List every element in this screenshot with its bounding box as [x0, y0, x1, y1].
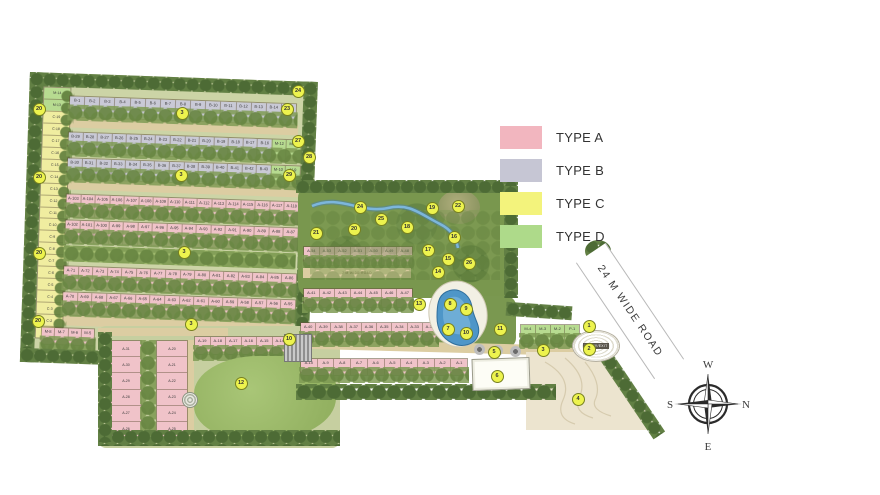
- plot-cell: A-105: [94, 195, 109, 217]
- plot-cell: B-12: [235, 102, 251, 123]
- plot-cell: A-82: [223, 272, 238, 294]
- plot-cell: A-115: [240, 200, 255, 222]
- map-marker-5: 5: [488, 346, 501, 359]
- tree-column: [140, 340, 156, 436]
- map-marker-17: 17: [422, 244, 435, 257]
- plot-cell: A-69: [76, 293, 91, 315]
- plot-cell: A-2: [434, 359, 451, 375]
- plot-cell: A-66: [120, 294, 135, 316]
- plot-cell: A-25: [157, 421, 187, 437]
- plot-cell: A-9: [317, 359, 334, 375]
- plot-cell: A-33: [407, 323, 422, 341]
- plot-cell: C-18: [43, 122, 69, 135]
- plot-cell: B-30: [67, 158, 81, 178]
- plot-cell: A-112: [196, 199, 211, 221]
- plot-cell: A-83: [237, 272, 252, 294]
- plot-cell: M-6: [67, 328, 81, 344]
- plot-column-a31-26: A-31A-30A-29A-28A-27A-26: [110, 340, 142, 438]
- map-marker-9: 9: [460, 303, 473, 316]
- compass-letter-right: N: [742, 399, 750, 411]
- plot-cell: A-79: [179, 270, 194, 292]
- plot-cell: A-88: [268, 227, 283, 249]
- plot-cell: A-116: [254, 201, 269, 223]
- plot-cell: A-22: [157, 372, 187, 388]
- plot-cell: A-41: [304, 289, 319, 307]
- type-c-label: TYPE C: [556, 196, 605, 211]
- plot-cell: A-8: [333, 359, 350, 375]
- plot-cell: M-14: [44, 88, 70, 100]
- plot-cell: C-10: [39, 218, 65, 231]
- map-marker-29: 29: [283, 169, 296, 182]
- plot-cell: B-4: [114, 98, 130, 119]
- type-b-swatch: [500, 159, 542, 182]
- compass-letter-left: S: [667, 399, 673, 411]
- plot-cell: B-13: [250, 103, 266, 124]
- plot-cell: B-16: [256, 139, 271, 159]
- plot-cell: A-110: [167, 198, 182, 220]
- plot-cell: A-117: [269, 201, 284, 223]
- plot-cell: B-3: [99, 97, 115, 118]
- plot-cell: A-94: [181, 224, 196, 246]
- plot-cell: B-5: [129, 98, 145, 119]
- map-marker-14: 14: [432, 266, 445, 279]
- plot-cell: B-34: [125, 160, 140, 180]
- entry-gate: ENTRY/EXIT: [572, 330, 620, 362]
- plot-cell: B-2: [84, 97, 100, 118]
- map-marker-24: 24: [292, 85, 305, 98]
- plot-cell: M-4: [521, 325, 535, 343]
- plot-cell: A-27: [111, 405, 141, 421]
- plot-cell: B-11: [220, 102, 236, 123]
- plot-cell: A-16: [241, 337, 257, 354]
- road-planter: [474, 344, 485, 355]
- internal-road: [98, 328, 228, 336]
- plot-cell: A-109: [152, 197, 167, 219]
- map-marker-1: 1: [583, 320, 596, 333]
- central-park: [298, 184, 514, 298]
- plot-cell: A-87: [282, 228, 297, 250]
- plot-cell: A-26: [111, 421, 141, 437]
- plot-cell: B-36: [154, 161, 169, 181]
- map-marker-24: 24: [354, 201, 367, 214]
- plot-cell: A-97: [137, 223, 152, 245]
- plot-cell: C-15: [42, 158, 68, 171]
- map-marker-18: 18: [401, 221, 414, 234]
- plot-cell: A-59: [222, 298, 237, 320]
- plot-cell: A-19: [195, 337, 210, 354]
- legend: TYPE A TYPE B TYPE C TYPE D: [500, 126, 605, 258]
- plot-cell: A-54: [304, 247, 319, 265]
- plot-cell: A-96: [151, 223, 166, 245]
- plot-row-m8-5: M-8M-7M-6M-5: [40, 327, 95, 347]
- fountain: [182, 392, 198, 408]
- map-marker-8: 8: [444, 298, 457, 311]
- plot-cell: B-29: [68, 132, 82, 152]
- plot-cell: A-77: [150, 269, 165, 291]
- map-marker-22: 22: [452, 200, 465, 213]
- compass-letter-top: W: [703, 359, 714, 371]
- plot-cell: A-103: [66, 194, 80, 216]
- map-marker-3: 3: [175, 169, 188, 182]
- map-marker-20: 20: [32, 315, 45, 328]
- plot-cell: B-20: [198, 137, 213, 157]
- map-marker-27: 27: [292, 135, 305, 148]
- plot-cell: B-43: [256, 165, 271, 185]
- plot-cell: A-44: [350, 289, 366, 307]
- legend-item-type-d: TYPE D: [500, 225, 605, 248]
- plot-cell: A-80: [193, 271, 208, 293]
- plot-cell: B-7: [159, 100, 175, 121]
- plot-cell: B-41: [226, 164, 241, 184]
- plot-cell: B-18: [227, 138, 242, 158]
- plot-cell: A-71: [63, 266, 77, 288]
- plot-cell: A-36: [361, 323, 376, 341]
- plot-cell: A-56: [265, 299, 280, 321]
- plot-row-b2: B-29B-28B-27B-26B-25B-24B-23B-22B-21B-20…: [67, 131, 302, 161]
- plot-row-a10-1: A-10A-9A-8A-7A-6A-5A-4A-3A-2A-1: [300, 358, 468, 376]
- map-marker-19: 19: [426, 202, 439, 215]
- plot-cell: A-81: [208, 271, 223, 293]
- plot-cell: A-31: [111, 341, 141, 356]
- plot-cell: A-62: [178, 296, 193, 318]
- plot-cell: A-42: [319, 289, 335, 307]
- plot-cell: A-29: [111, 372, 141, 388]
- map-marker-7: 7: [442, 323, 455, 336]
- plot-cell: C-16: [42, 146, 68, 159]
- plot-row-m4-p1: M-4M-3M-2P-1: [520, 324, 580, 344]
- plot-cell: A-30: [111, 356, 141, 372]
- plot-cell: A-76: [135, 269, 150, 291]
- plot-cell: M-3: [535, 325, 550, 343]
- plot-cell: A-95: [166, 224, 181, 246]
- plot-cell: A-107: [123, 196, 138, 218]
- plot-cell: B-27: [96, 133, 111, 153]
- plot-cell: A-28: [111, 389, 141, 405]
- map-marker-20: 20: [348, 223, 361, 236]
- plot-cell: C-11: [40, 206, 66, 219]
- plot-cell: A-111: [181, 198, 196, 220]
- map-marker-13: 13: [413, 298, 426, 311]
- plot-cell: A-38: [330, 323, 345, 341]
- plot-cell: A-101: [79, 221, 94, 243]
- plot-row-a40-32: A-40A-39A-38A-37A-36A-35A-34A-33A-32: [300, 322, 438, 342]
- plot-cell: A-64: [149, 295, 164, 317]
- plot-cell: M-5: [80, 329, 94, 345]
- plot-cell: A-85: [266, 273, 281, 295]
- map-marker-11: 11: [494, 323, 507, 336]
- plot-cell: B-35: [139, 161, 154, 181]
- map-marker-4: 4: [572, 393, 585, 406]
- plot-cell: A-65: [134, 295, 149, 317]
- plot-cell: A-118: [283, 202, 298, 224]
- map-marker-3: 3: [537, 344, 550, 357]
- map-marker-20: 20: [33, 247, 46, 260]
- plot-row-a19-14: A-19A-18A-17A-16A-15A-14: [194, 336, 288, 355]
- plot-cell: M-2: [550, 325, 565, 343]
- map-marker-15: 15: [442, 253, 455, 266]
- plot-cell: A-72: [77, 267, 92, 289]
- plot-cell: B-14: [265, 103, 281, 124]
- plot-cell: A-99: [108, 222, 123, 244]
- map-marker-28: 28: [303, 151, 316, 164]
- map-marker-10: 10: [460, 327, 473, 340]
- plot-cell: A-102: [65, 220, 79, 242]
- plot-cell: A-93: [195, 225, 210, 247]
- plot-cell: C-4: [37, 290, 63, 303]
- plot-cell: A-7: [350, 359, 367, 375]
- type-a-label: TYPE A: [556, 130, 603, 145]
- plot-cell: B-1: [69, 96, 84, 116]
- type-c-swatch: [500, 192, 542, 215]
- plot-cell: A-48: [396, 247, 412, 265]
- map-marker-3: 3: [176, 107, 189, 120]
- plot-cell: A-73: [92, 267, 107, 289]
- plot-cell: C-13: [41, 182, 67, 195]
- map-marker-2: 2: [583, 343, 596, 356]
- plot-cell: A-21: [157, 356, 187, 372]
- map-marker-25: 25: [375, 213, 388, 226]
- plot-cell: A-61: [193, 297, 208, 319]
- compass-letter-bottom: E: [705, 441, 712, 453]
- type-d-label: TYPE D: [556, 229, 605, 244]
- plot-cell: A-24: [157, 405, 187, 421]
- plot-cell: B-42: [241, 164, 256, 184]
- plot-cell: C-5: [37, 278, 63, 291]
- plot-cell: A-78: [164, 270, 179, 292]
- plot-cell: B-33: [110, 160, 125, 180]
- map-marker-21: 21: [310, 227, 323, 240]
- plot-cell: A-3: [417, 359, 434, 375]
- plot-cell: A-90: [239, 226, 254, 248]
- map-marker-20: 20: [33, 171, 46, 184]
- plot-cell: B-31: [81, 159, 96, 179]
- plot-cell: A-68: [91, 293, 106, 315]
- plot-cell: B-10: [205, 101, 221, 122]
- legend-item-type-c: TYPE C: [500, 192, 605, 215]
- plot-cell: A-104: [80, 195, 95, 217]
- southwest-plot-block: A-31A-30A-29A-28A-27A-26 A-20A-21A-22A-2…: [98, 326, 340, 448]
- plot-cell: A-74: [106, 268, 121, 290]
- plot-cell: C-6: [38, 266, 64, 279]
- plot-cell: B-28: [82, 133, 97, 153]
- type-d-swatch: [500, 225, 542, 248]
- plot-cell: A-52: [334, 247, 350, 265]
- plot-cell: A-55: [280, 300, 295, 322]
- legend-item-type-a: TYPE A: [500, 126, 605, 149]
- plot-cell: A-51: [350, 247, 366, 265]
- plot-cell: A-46: [381, 289, 397, 307]
- plot-cell: A-47: [396, 289, 412, 307]
- plot-cell: A-17: [225, 337, 241, 354]
- map-marker-20: 20: [33, 103, 46, 116]
- plot-cell: A-43: [334, 289, 350, 307]
- plot-cell: B-19: [213, 137, 228, 157]
- plot-cell: B-22: [169, 136, 184, 156]
- map-marker-3: 3: [185, 318, 198, 331]
- plot-cell: A-18: [210, 337, 226, 354]
- compass-rose: W N E S: [658, 352, 758, 456]
- plot-cell: M-7: [54, 328, 68, 344]
- type-a-swatch: [500, 126, 542, 149]
- plot-cell: A-100: [93, 221, 108, 243]
- compass-main-points: [678, 374, 738, 434]
- plot-cell: A-15: [256, 337, 272, 354]
- plot-cell: A-70: [63, 292, 77, 314]
- plot-column-a20-25: A-20A-21A-22A-23A-24A-25: [156, 340, 188, 438]
- plot-cell: A-53: [319, 247, 335, 265]
- plot-cell: A-20: [157, 341, 187, 356]
- plot-cell: M-13: [44, 98, 70, 111]
- map-marker-12: 12: [235, 377, 248, 390]
- plot-cell: B-39: [197, 163, 212, 183]
- plot-cell: A-84: [252, 273, 267, 295]
- plot-cell: A-5: [384, 359, 401, 375]
- plot-cell: A-113: [211, 199, 226, 221]
- map-marker-23: 23: [281, 103, 294, 116]
- plot-cell: A-114: [225, 200, 240, 222]
- plot-cell: C-19: [43, 110, 69, 123]
- plot-cell: A-92: [210, 225, 225, 247]
- plot-cell: A-37: [346, 323, 361, 341]
- plot-cell: B-17: [242, 138, 257, 158]
- plot-cell: A-35: [376, 323, 391, 341]
- plot-cell: A-58: [236, 298, 251, 320]
- map-marker-26: 26: [463, 257, 476, 270]
- internal-road-label: 7 M WIDE ROAD: [303, 268, 411, 278]
- map-marker-6: 6: [491, 370, 504, 383]
- plot-cell: C-17: [42, 134, 68, 147]
- plot-cell: B-21: [184, 136, 199, 156]
- plot-cell: C-12: [40, 194, 66, 207]
- plot-row-a54-48: A-54A-53A-52A-51A-50A-49A-48: [303, 246, 413, 266]
- plot-row-a41-47: A-41A-42A-43A-44A-45A-46A-47: [303, 288, 413, 308]
- map-marker-16: 16: [448, 231, 461, 244]
- plot-cell: A-32: [422, 323, 437, 341]
- main-plot-grid: B-1B-2B-3B-4B-5B-6B-7B-8B-9B-10B-11B-12B…: [60, 87, 303, 357]
- map-marker-10: 10: [283, 333, 296, 346]
- plot-cell: B-25: [125, 134, 140, 154]
- plot-cell: A-60: [207, 297, 222, 319]
- plot-cell: A-63: [163, 296, 178, 318]
- plot-cell: A-67: [105, 294, 120, 316]
- plot-cell: B-40: [212, 163, 227, 183]
- plot-cell: A-57: [251, 299, 266, 321]
- plot-cell: B-32: [95, 159, 110, 179]
- plot-cell: A-108: [138, 197, 153, 219]
- plot-cell: A-39: [315, 323, 330, 341]
- plot-cell: B-6: [144, 99, 160, 120]
- plot-cell: A-98: [122, 222, 137, 244]
- plot-cell: B-23: [155, 135, 170, 155]
- plot-cell: A-6: [367, 359, 384, 375]
- legend-item-type-b: TYPE B: [500, 159, 605, 182]
- map-marker-3: 3: [178, 246, 191, 259]
- plot-cell: B-24: [140, 135, 155, 155]
- plot-cell: A-45: [365, 289, 381, 307]
- plot-cell: B-9: [190, 101, 206, 122]
- plot-cell: A-34: [391, 323, 406, 341]
- internal-road-labelled: 7 M WIDE ROAD: [303, 268, 411, 278]
- plot-cell: A-49: [381, 247, 397, 265]
- site-master-plan: M-14M-13C-19C-18C-17C-16C-15C-14C-13C-12…: [0, 0, 880, 495]
- plot-cell: B-26: [111, 134, 126, 154]
- plot-cell: A-4: [400, 359, 417, 375]
- plot-cell: C-3: [37, 302, 63, 315]
- plot-cell: M-12: [271, 139, 286, 159]
- plot-cell: M-8: [42, 328, 55, 344]
- plot-cell: A-50: [365, 247, 381, 265]
- contour-area: [526, 352, 658, 430]
- road-planter: [510, 346, 521, 357]
- plot-cell: C-9: [39, 230, 65, 243]
- plot-cell: A-75: [121, 268, 136, 290]
- plot-cell: A-106: [109, 196, 124, 218]
- plot-cell: A-1: [450, 359, 467, 375]
- plot-cell: A-91: [224, 226, 239, 248]
- type-b-label: TYPE B: [556, 163, 604, 178]
- plot-cell: A-86: [281, 274, 296, 296]
- plot-cell: A-89: [253, 227, 268, 249]
